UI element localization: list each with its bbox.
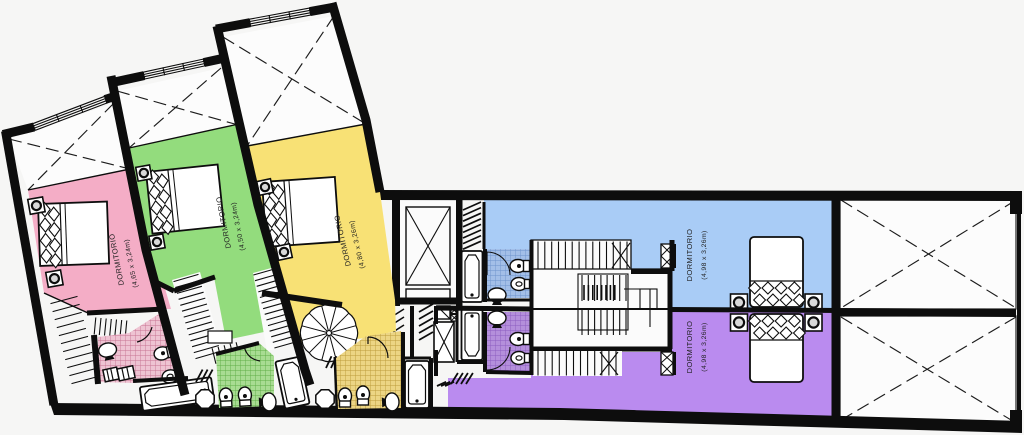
svg-text:(4,98 x 3,26m): (4,98 x 3,26m) xyxy=(701,230,708,279)
svg-text:DORMITORIO: DORMITORIO xyxy=(685,229,694,282)
svg-text:DORMITORIO: DORMITORIO xyxy=(685,321,694,374)
svg-text:(4,98 x 3,26m): (4,98 x 3,26m) xyxy=(701,322,708,371)
